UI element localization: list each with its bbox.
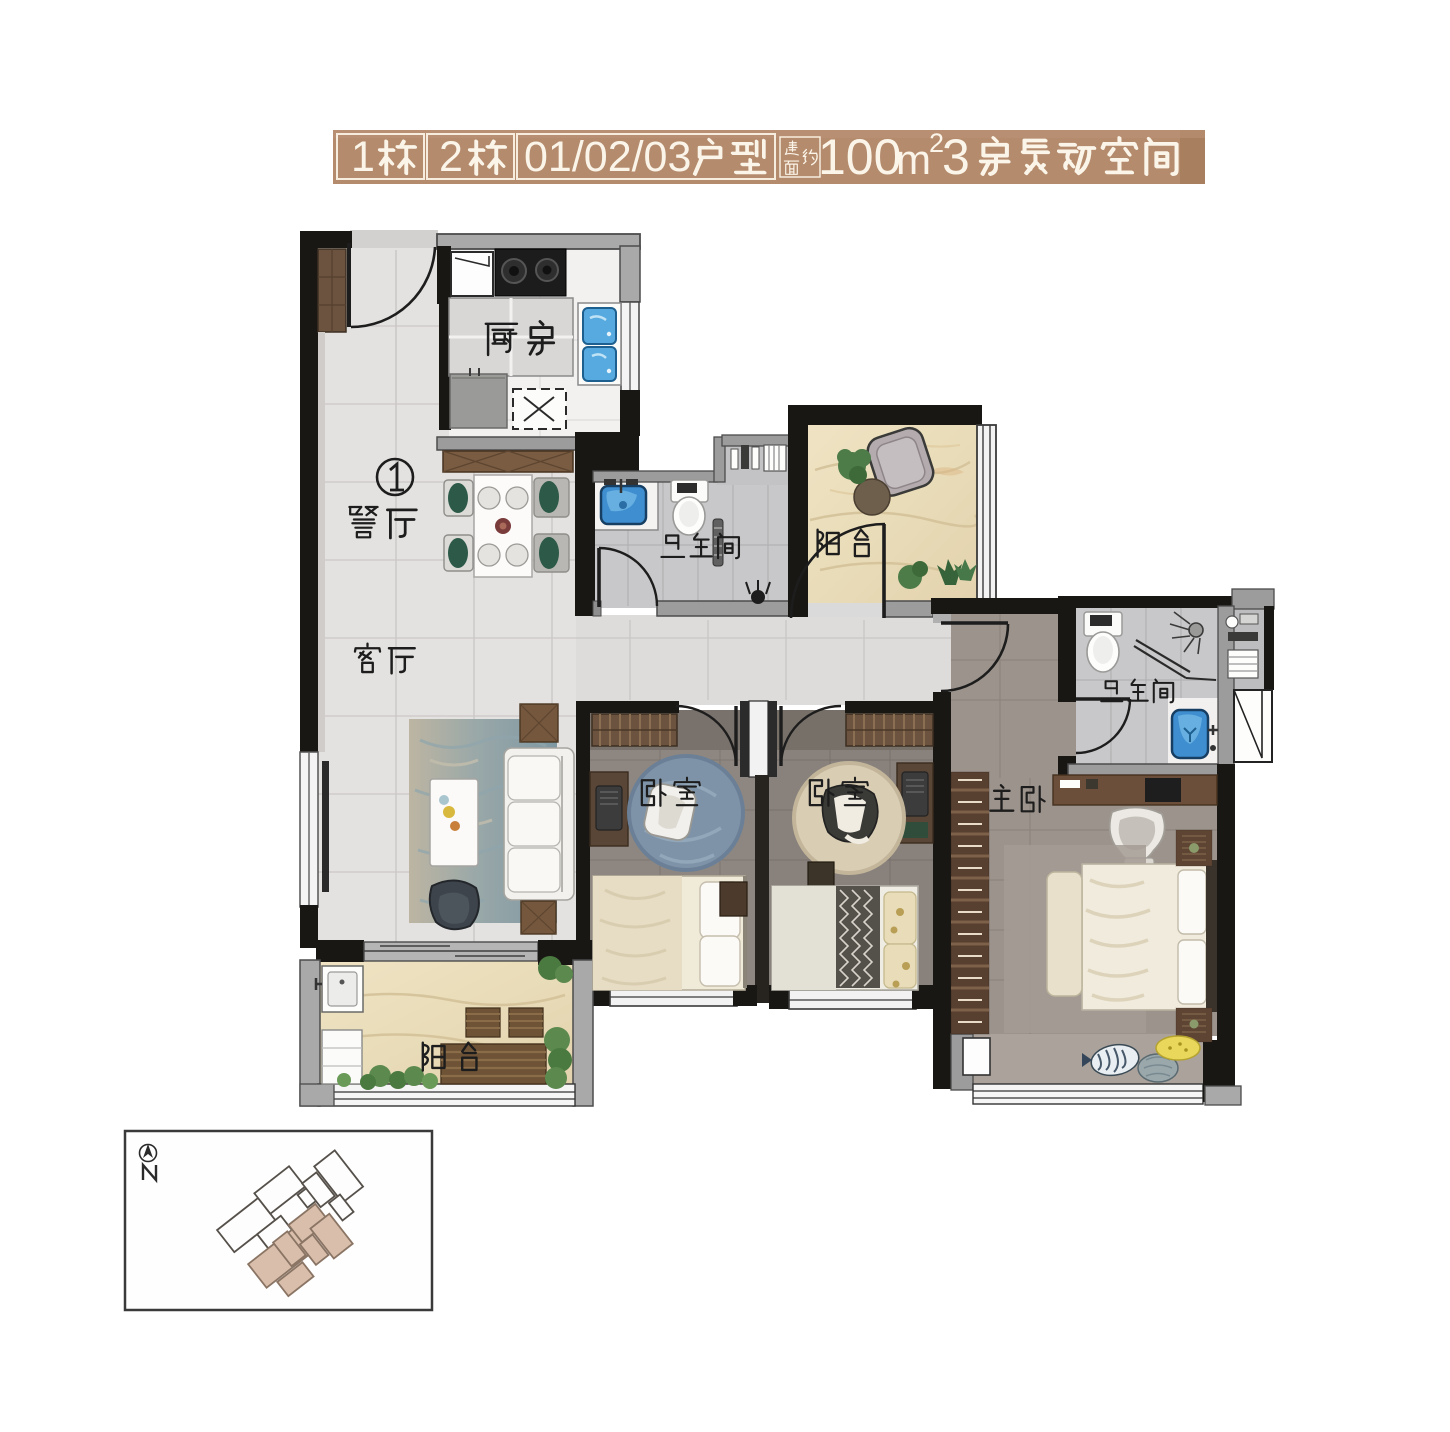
svg-text:m: m <box>896 136 931 183</box>
svg-text:2: 2 <box>439 133 463 181</box>
svg-text:100: 100 <box>818 129 901 185</box>
svg-text:1: 1 <box>351 133 375 181</box>
svg-text:3: 3 <box>942 129 970 185</box>
svg-text:01/02/03: 01/02/03 <box>524 133 691 181</box>
